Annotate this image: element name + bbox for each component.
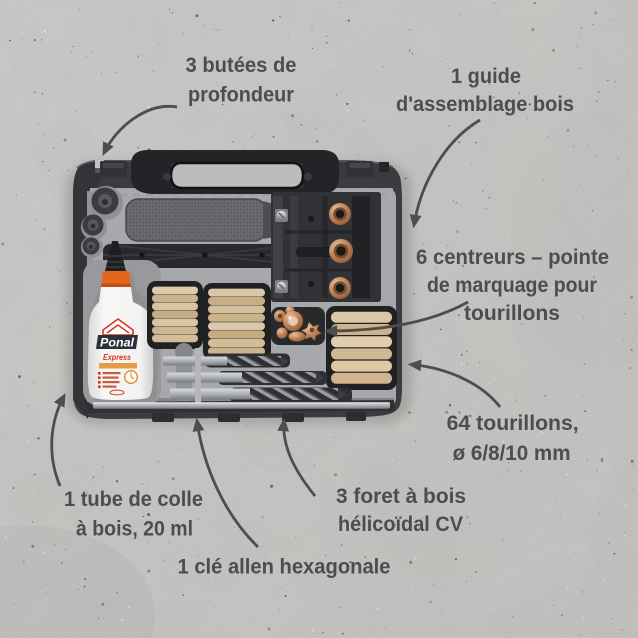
svg-text:1 tube de colle: 1 tube de colle	[64, 488, 203, 511]
svg-text:tourillons: tourillons	[464, 302, 560, 325]
svg-text:1 clé allen hexagonale: 1 clé allen hexagonale	[178, 556, 391, 579]
svg-text:hélicoïdal CV: hélicoïdal CV	[338, 513, 463, 536]
svg-text:3 foret à bois: 3 foret à bois	[336, 485, 466, 508]
svg-text:Express: Express	[103, 352, 131, 362]
svg-text:profondeur: profondeur	[188, 84, 294, 107]
svg-text:d'assemblage bois: d'assemblage bois	[396, 93, 574, 116]
svg-text:3 butées de: 3 butées de	[186, 54, 297, 77]
svg-text:6 centreurs – pointe: 6 centreurs – pointe	[416, 246, 609, 269]
svg-text:1 guide: 1 guide	[451, 65, 521, 88]
svg-text:de marquage pour: de marquage pour	[427, 274, 597, 297]
svg-text:à bois, 20 ml: à bois, 20 ml	[76, 518, 193, 541]
svg-text:ø 6/8/10 mm: ø 6/8/10 mm	[453, 442, 571, 465]
svg-text:Ponal: Ponal	[100, 338, 135, 350]
svg-text:64 tourillons,: 64 tourillons,	[447, 412, 579, 435]
